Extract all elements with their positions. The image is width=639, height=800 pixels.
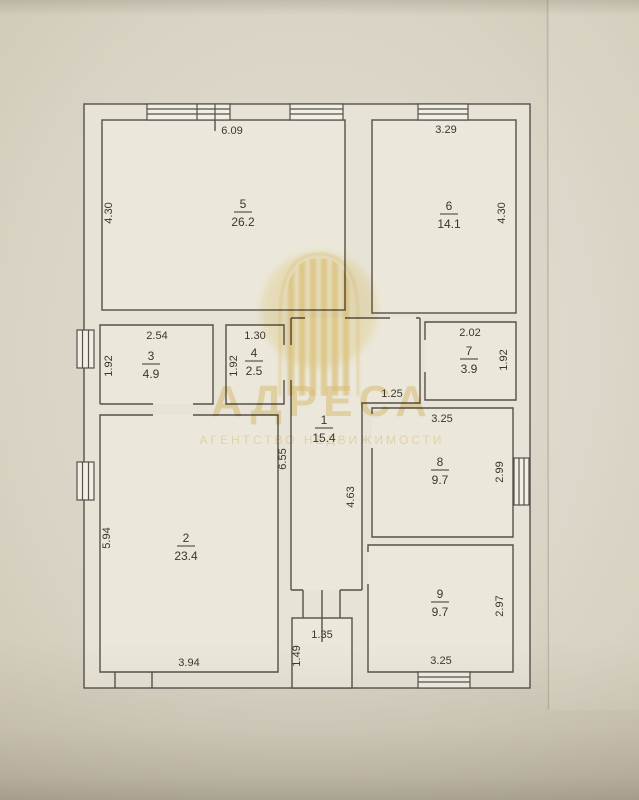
window-symbol-room3	[77, 330, 94, 368]
window-symbol-room6	[418, 104, 468, 120]
window-symbol-room2	[77, 462, 94, 500]
dim-room4-width: 1.30	[244, 330, 265, 342]
dim-room7-height: 1.92	[498, 349, 510, 370]
room-8-area: 9.7	[432, 473, 449, 487]
paper-edge-strip	[549, 0, 639, 710]
scan-top-shadow	[0, 0, 639, 16]
room-3-area: 4.9	[143, 367, 160, 381]
floor-plan-drawing: 6.09 3.29 2.54 1.30 2.02 1.25 3.25 3.94 …	[0, 0, 639, 800]
dim-room7-width: 2.02	[459, 327, 480, 339]
scan-bottom-shadow	[0, 640, 639, 800]
dim-room3-height: 1.92	[103, 355, 115, 376]
dim-room4-height: 1.92	[228, 355, 240, 376]
room-4-number: 4	[251, 346, 258, 360]
dim-room3-width: 2.54	[146, 330, 167, 342]
dim-room5-height: 4.30	[103, 202, 115, 223]
dim-room6-height: 4.30	[496, 202, 508, 223]
window-symbol-room5-right	[290, 104, 343, 120]
watermark-tagline-text: АГЕНТСТВО НЕДВИЖИМОСТИ	[199, 433, 444, 447]
room-2-number: 2	[183, 531, 190, 545]
room-8-number: 8	[437, 455, 444, 469]
window-symbol-room8	[514, 458, 529, 505]
watermark-glow	[261, 252, 377, 368]
dim-room6-width: 3.29	[435, 124, 456, 136]
room-6-number: 6	[446, 199, 453, 213]
dim-room9-height: 2.97	[494, 595, 506, 616]
dim-vestibule-width: 1.35	[311, 629, 332, 641]
room-7-number: 7	[466, 344, 473, 358]
room-5-area: 26.2	[231, 215, 255, 229]
watermark-brand-text: АДРЕСА	[211, 377, 433, 426]
room-7-area: 3.9	[461, 362, 478, 376]
paper-fold-line	[548, 0, 549, 710]
room-6-area: 14.1	[437, 217, 461, 231]
room-9-number: 9	[437, 587, 444, 601]
room-2-area: 23.4	[174, 549, 198, 563]
dim-room5-width: 6.09	[221, 125, 242, 137]
room-5-number: 5	[240, 197, 247, 211]
dim-room1-right-height: 4.63	[345, 486, 357, 507]
room-3-number: 3	[148, 349, 155, 363]
window-symbol-room5-left	[147, 104, 230, 120]
room-4-area: 2.5	[246, 364, 263, 378]
dim-room8-width: 3.25	[431, 413, 452, 425]
dim-room1-left-height: 6.55	[277, 448, 289, 469]
scanned-floor-plan-document: 6.09 3.29 2.54 1.30 2.02 1.25 3.25 3.94 …	[0, 0, 639, 800]
dim-room2-height: 5.94	[101, 527, 113, 548]
dim-room8-height: 2.99	[494, 461, 506, 482]
room-9-area: 9.7	[432, 605, 449, 619]
